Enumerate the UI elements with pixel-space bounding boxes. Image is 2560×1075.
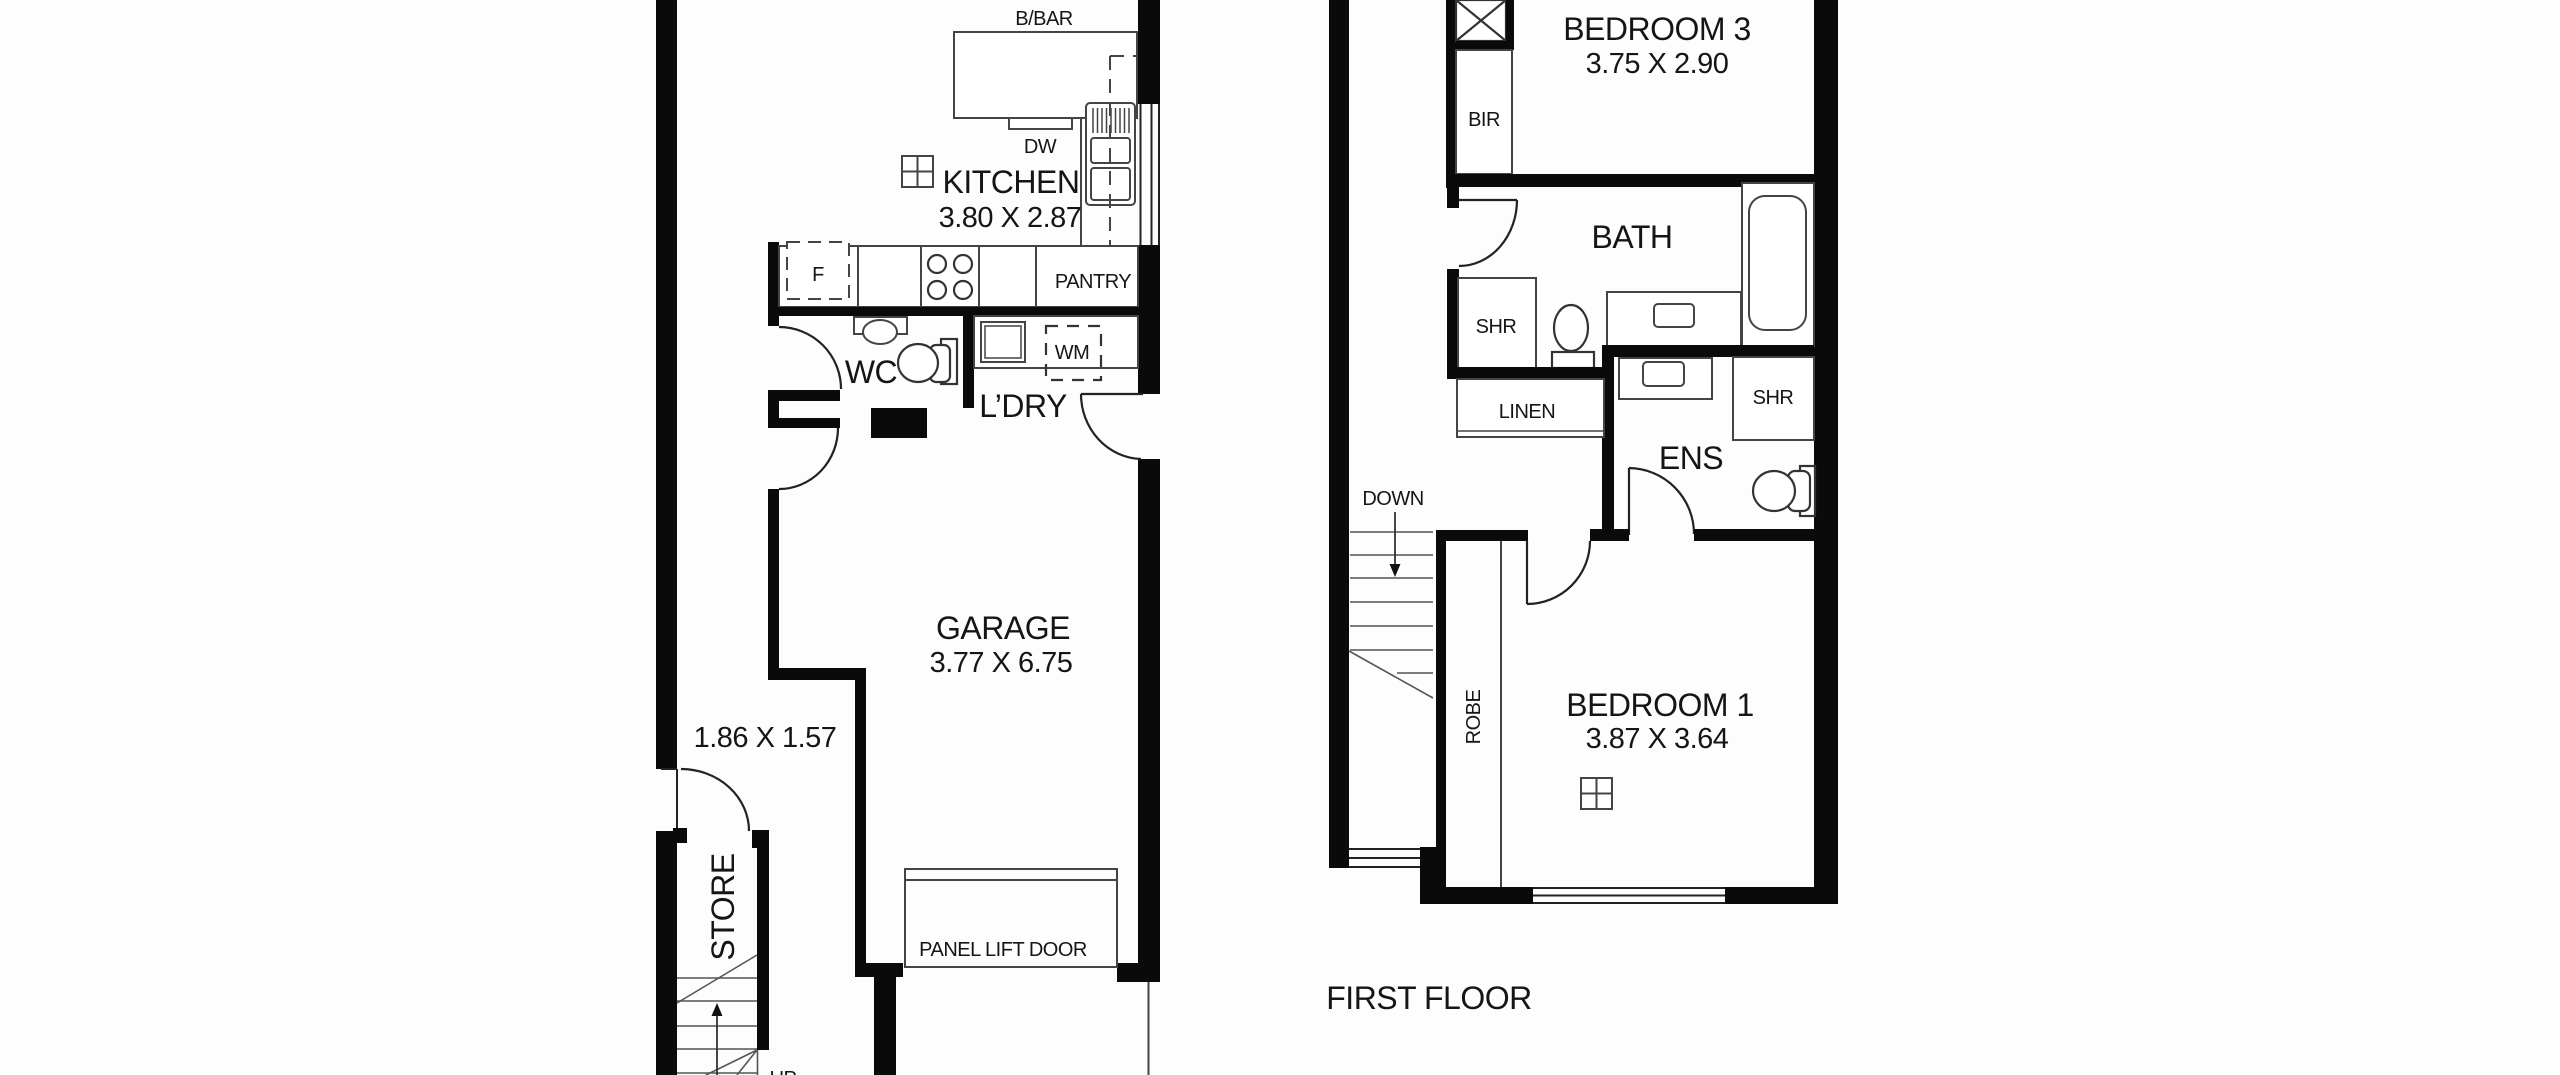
svg-text:STORE: STORE [705, 853, 741, 960]
svg-text:3.80 X 2.87: 3.80 X 2.87 [939, 202, 1082, 234]
svg-text:BIR: BIR [1468, 109, 1500, 131]
svg-text:WC: WC [845, 354, 897, 390]
svg-text:DOWN: DOWN [1362, 488, 1423, 510]
svg-text:PANTRY: PANTRY [1055, 271, 1131, 293]
svg-text:ENS: ENS [1659, 440, 1723, 476]
svg-text:F: F [812, 264, 824, 286]
svg-text:3.87 X 3.64: 3.87 X 3.64 [1586, 723, 1729, 755]
svg-text:BEDROOM 3: BEDROOM 3 [1563, 11, 1751, 47]
svg-text:KITCHEN: KITCHEN [943, 164, 1080, 200]
svg-text:LINEN: LINEN [1499, 401, 1555, 423]
svg-text:GARAGE: GARAGE [936, 610, 1070, 646]
svg-text:FIRST FLOOR: FIRST FLOOR [1326, 980, 1531, 1016]
svg-text:B/BAR: B/BAR [1015, 8, 1073, 30]
svg-text:L’DRY: L’DRY [979, 388, 1067, 424]
svg-text:SHR: SHR [1476, 316, 1517, 338]
svg-text:ROBE: ROBE [1463, 690, 1485, 745]
svg-text:3.75 X 2.90: 3.75 X 2.90 [1586, 48, 1729, 80]
svg-text:PANEL LIFT DOOR: PANEL LIFT DOOR [919, 939, 1087, 961]
svg-text:UP: UP [770, 1068, 797, 1075]
svg-text:WM: WM [1055, 342, 1090, 364]
svg-text:DW: DW [1024, 136, 1057, 158]
svg-text:1.86 X 1.57: 1.86 X 1.57 [694, 722, 837, 754]
svg-text:3.77 X 6.75: 3.77 X 6.75 [930, 647, 1073, 679]
svg-text:BATH: BATH [1592, 219, 1673, 255]
svg-text:SHR: SHR [1753, 387, 1794, 409]
svg-text:BEDROOM 1: BEDROOM 1 [1566, 687, 1754, 723]
